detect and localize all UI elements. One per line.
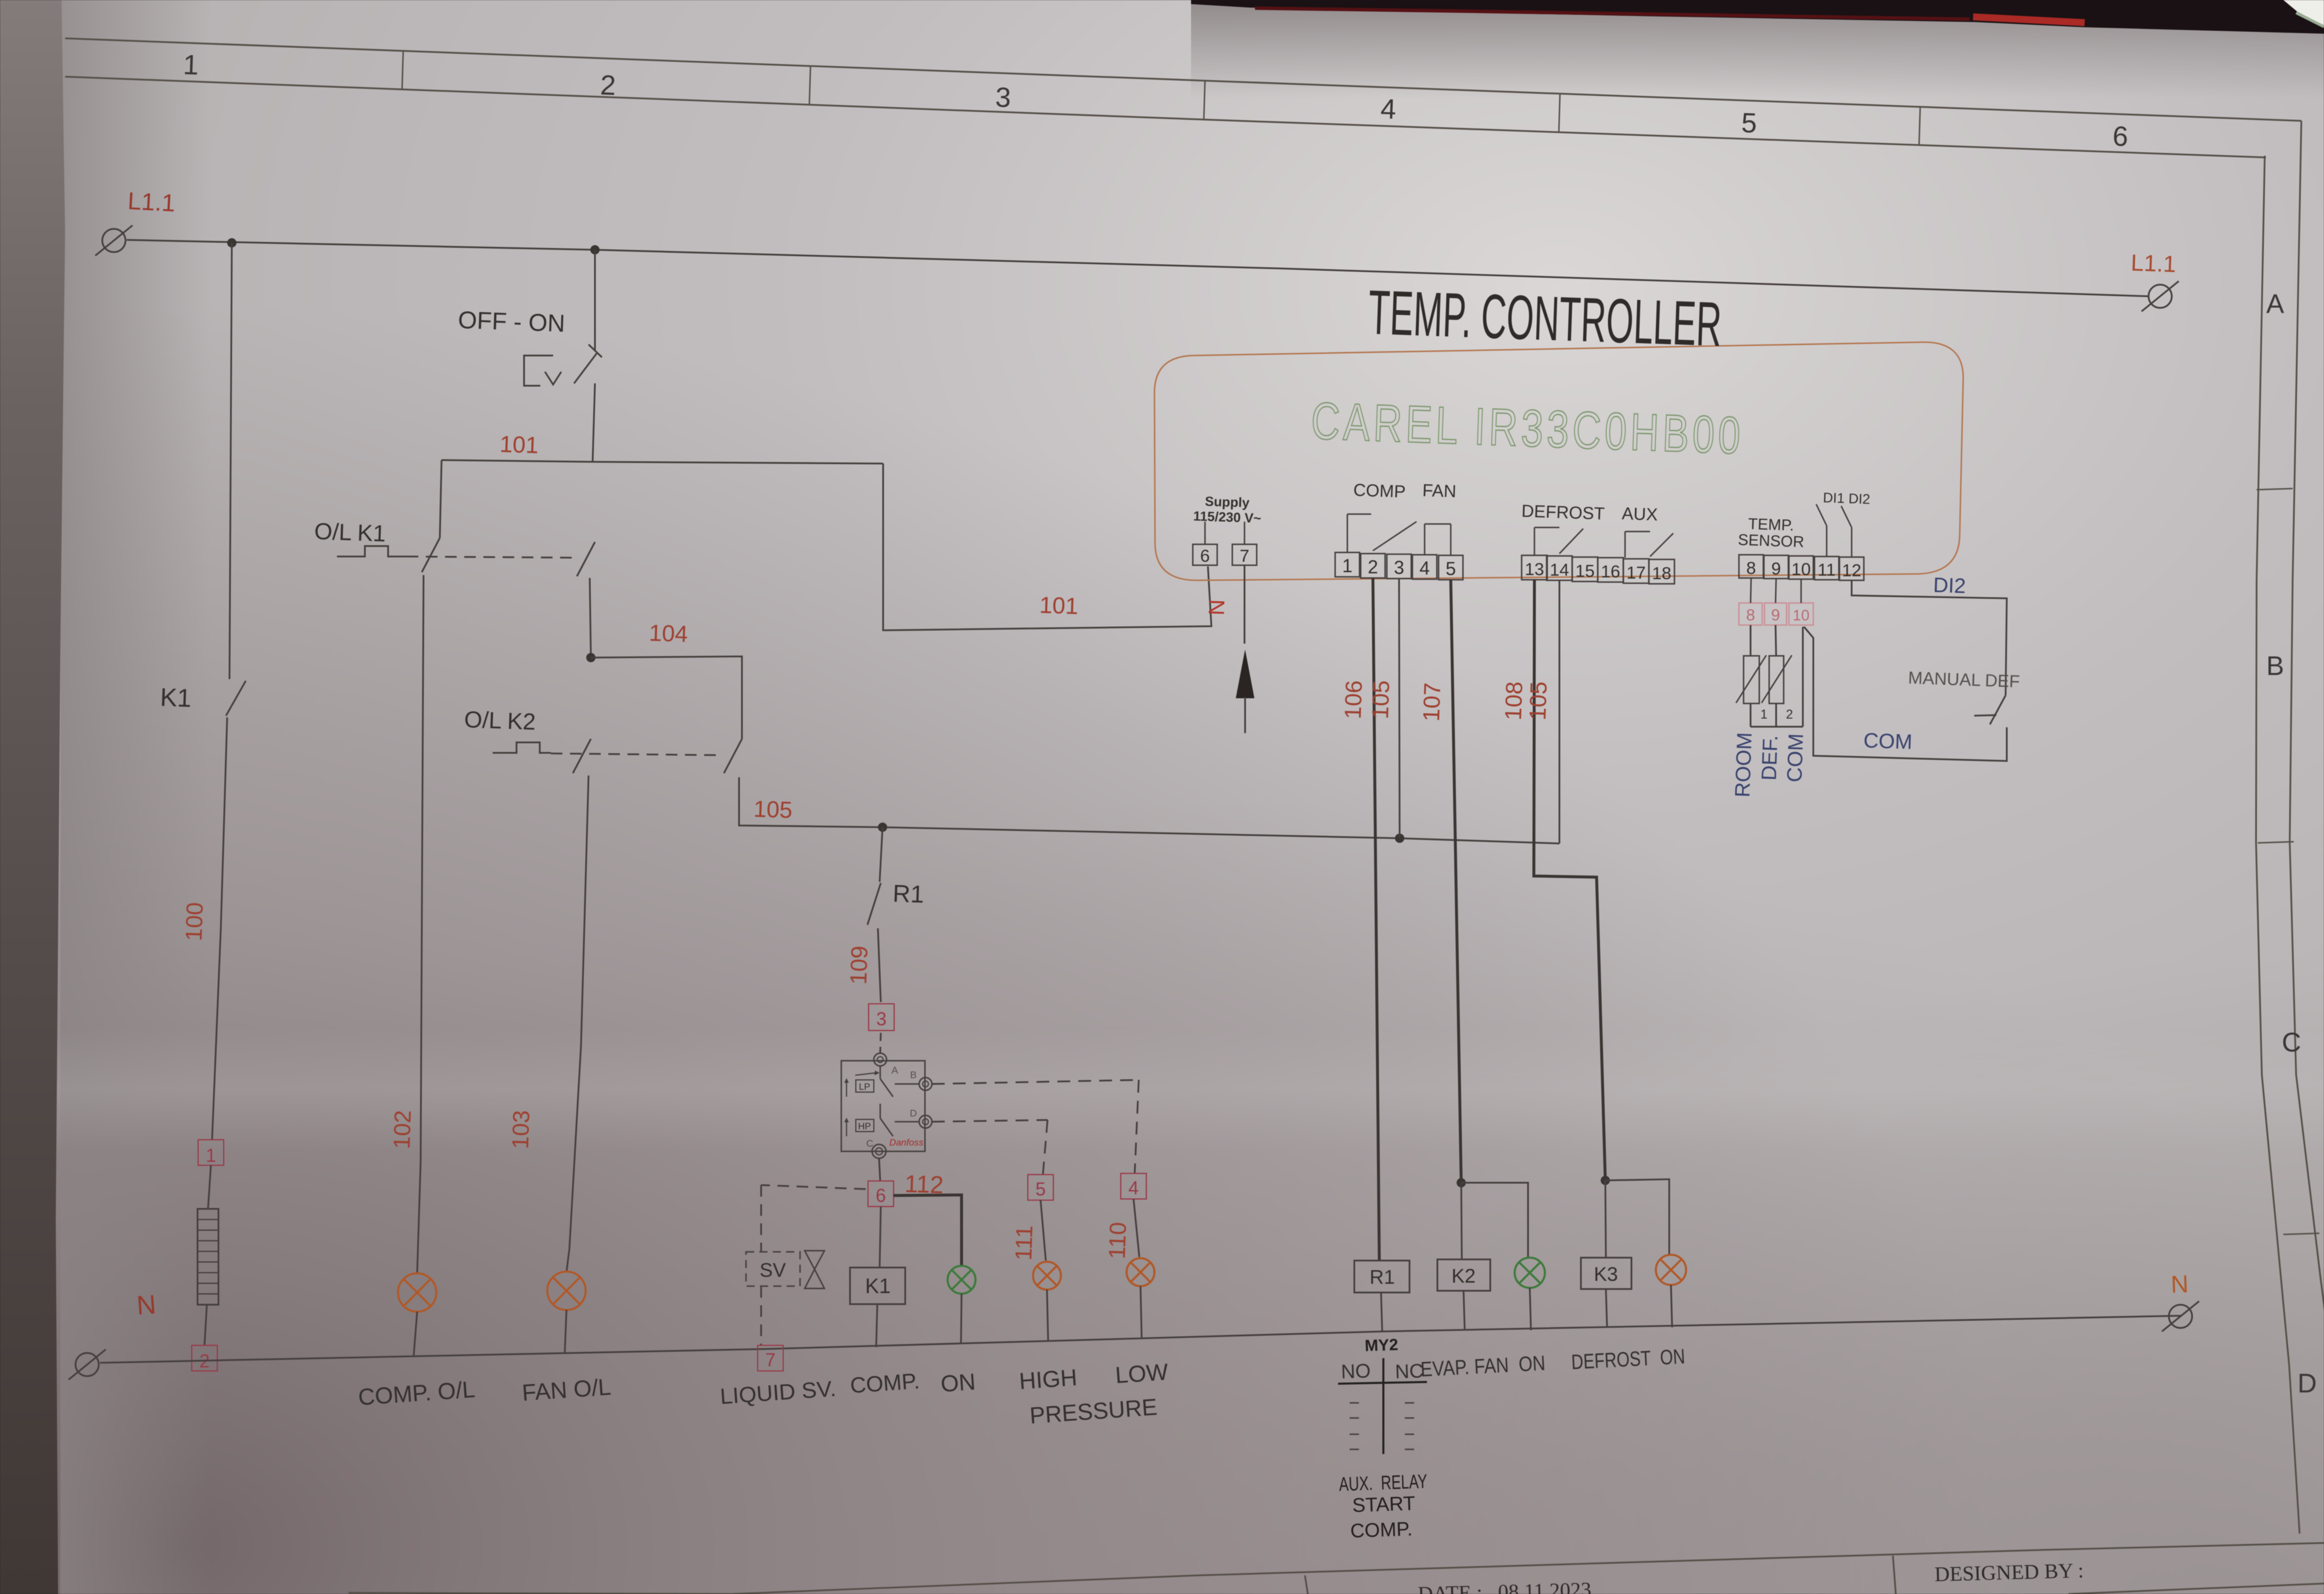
svg-text:1: 1 (1760, 707, 1767, 721)
svg-text:SV: SV (759, 1259, 786, 1281)
svg-text:2: 2 (1786, 707, 1793, 721)
svg-text:Danfoss: Danfoss (890, 1138, 924, 1148)
svg-text:16: 16 (1601, 562, 1620, 581)
svg-text:K2: K2 (1451, 1265, 1476, 1287)
svg-text:101: 101 (1039, 593, 1078, 619)
svg-text:C: C (2282, 1027, 2301, 1057)
svg-text:10: 10 (1793, 606, 1810, 624)
svg-text:101: 101 (499, 432, 539, 458)
svg-text:LOW: LOW (1114, 1359, 1169, 1388)
svg-text:105: 105 (1525, 681, 1552, 720)
svg-text:COMP: COMP (1353, 480, 1406, 501)
svg-text:1: 1 (182, 50, 199, 81)
svg-text:13: 13 (1525, 560, 1544, 579)
svg-text:15: 15 (1575, 562, 1594, 581)
svg-text:COM: COM (1783, 733, 1808, 782)
svg-text:K3: K3 (1594, 1263, 1618, 1286)
svg-text:14: 14 (1550, 561, 1569, 580)
svg-text:111: 111 (1011, 1225, 1038, 1261)
svg-text:LP: LP (859, 1082, 870, 1092)
svg-text:COMP.: COMP. (849, 1369, 920, 1398)
svg-text:SENSOR: SENSOR (1738, 531, 1805, 551)
svg-text:6: 6 (1200, 547, 1210, 566)
svg-text:4: 4 (1419, 558, 1430, 579)
svg-text:5: 5 (1035, 1179, 1046, 1200)
svg-text:NC: NC (1394, 1360, 1423, 1383)
svg-text:K1: K1 (865, 1274, 891, 1298)
svg-text:ROOM: ROOM (1730, 732, 1756, 798)
svg-text:11: 11 (1817, 561, 1835, 580)
svg-text:7: 7 (1240, 547, 1250, 566)
svg-text:1: 1 (206, 1145, 216, 1166)
svg-text:103: 103 (508, 1110, 535, 1149)
svg-text:START: START (1352, 1492, 1416, 1517)
svg-text:110: 110 (1104, 1222, 1131, 1259)
svg-text:B: B (910, 1069, 916, 1080)
svg-text:108: 108 (1501, 681, 1527, 720)
svg-text:6: 6 (2112, 121, 2129, 153)
svg-text:D: D (910, 1108, 917, 1119)
svg-text:MANUAL DEF: MANUAL DEF (1908, 669, 2020, 692)
svg-text:TEMP. CONTROLLER: TEMP. CONTROLLER (1367, 277, 1723, 359)
svg-text:102: 102 (389, 1110, 416, 1149)
svg-text:AUX. RELAY: AUX. RELAY (1339, 1470, 1428, 1495)
svg-text:10: 10 (1791, 560, 1810, 579)
svg-text:HIGH: HIGH (1018, 1365, 1078, 1395)
svg-text:105: 105 (1368, 680, 1394, 719)
svg-text:3: 3 (876, 1008, 887, 1029)
svg-text:7: 7 (765, 1349, 776, 1370)
svg-text:17: 17 (1626, 563, 1645, 583)
svg-text:4: 4 (1380, 94, 1397, 125)
svg-text:100: 100 (181, 902, 208, 941)
svg-text:R1: R1 (1369, 1266, 1394, 1288)
svg-text:OFF - ON: OFF - ON (458, 306, 566, 337)
svg-text:L1.1: L1.1 (2131, 250, 2176, 278)
svg-text:3: 3 (1394, 557, 1404, 578)
svg-text:1: 1 (1342, 555, 1353, 576)
svg-text:9: 9 (1771, 559, 1781, 579)
svg-text:5: 5 (1446, 558, 1456, 579)
svg-text:DEF.: DEF. (1757, 735, 1783, 781)
svg-text:2: 2 (600, 70, 616, 102)
svg-text:3: 3 (995, 82, 1012, 114)
svg-text:O/L K1: O/L K1 (314, 519, 386, 547)
svg-text:COM: COM (1863, 728, 1913, 754)
svg-text:L1.1: L1.1 (127, 187, 176, 217)
svg-text:5: 5 (1741, 108, 1758, 139)
svg-text:DEFROST: DEFROST (1521, 502, 1605, 524)
svg-text:18: 18 (1652, 564, 1671, 583)
svg-text:DI1 DI2: DI1 DI2 (1823, 490, 1870, 508)
svg-text:DESIGNED BY :: DESIGNED BY : (1934, 1559, 2084, 1586)
svg-text:MY2: MY2 (1364, 1335, 1398, 1355)
svg-text:8: 8 (1746, 606, 1755, 624)
svg-text:12: 12 (1842, 561, 1861, 580)
svg-text:AUX: AUX (1622, 504, 1658, 525)
svg-text:N: N (1205, 599, 1230, 616)
svg-text:B: B (2266, 651, 2284, 681)
svg-text:6: 6 (876, 1185, 886, 1206)
svg-text:106: 106 (1340, 680, 1367, 719)
svg-text:2: 2 (1368, 557, 1378, 577)
svg-text:C: C (866, 1138, 873, 1149)
svg-text:K1: K1 (160, 683, 192, 713)
svg-text:A: A (891, 1065, 898, 1076)
svg-text:Supply: Supply (1205, 494, 1250, 511)
svg-text:N: N (2171, 1270, 2189, 1298)
svg-text:R1: R1 (892, 879, 924, 908)
svg-text:COMP.: COMP. (1350, 1518, 1412, 1542)
svg-text:N: N (135, 1289, 157, 1320)
svg-text:DI2: DI2 (1933, 573, 1966, 598)
svg-text:115/230 V~: 115/230 V~ (1193, 508, 1261, 526)
svg-text:O/L K2: O/L K2 (464, 707, 536, 735)
svg-text:FAN: FAN (1422, 481, 1457, 501)
svg-text:109: 109 (846, 945, 873, 985)
svg-text:4: 4 (1128, 1177, 1139, 1198)
svg-text:A: A (2266, 289, 2284, 319)
svg-text:NO: NO (1340, 1360, 1371, 1383)
svg-text:104: 104 (648, 620, 688, 647)
svg-text:107: 107 (1419, 682, 1446, 721)
svg-text:8: 8 (1746, 559, 1756, 578)
svg-text:D: D (2297, 1368, 2316, 1398)
svg-text:HP: HP (858, 1122, 871, 1132)
svg-text:105: 105 (753, 796, 792, 823)
svg-text:ON: ON (940, 1369, 977, 1397)
svg-text:9: 9 (1771, 606, 1780, 624)
